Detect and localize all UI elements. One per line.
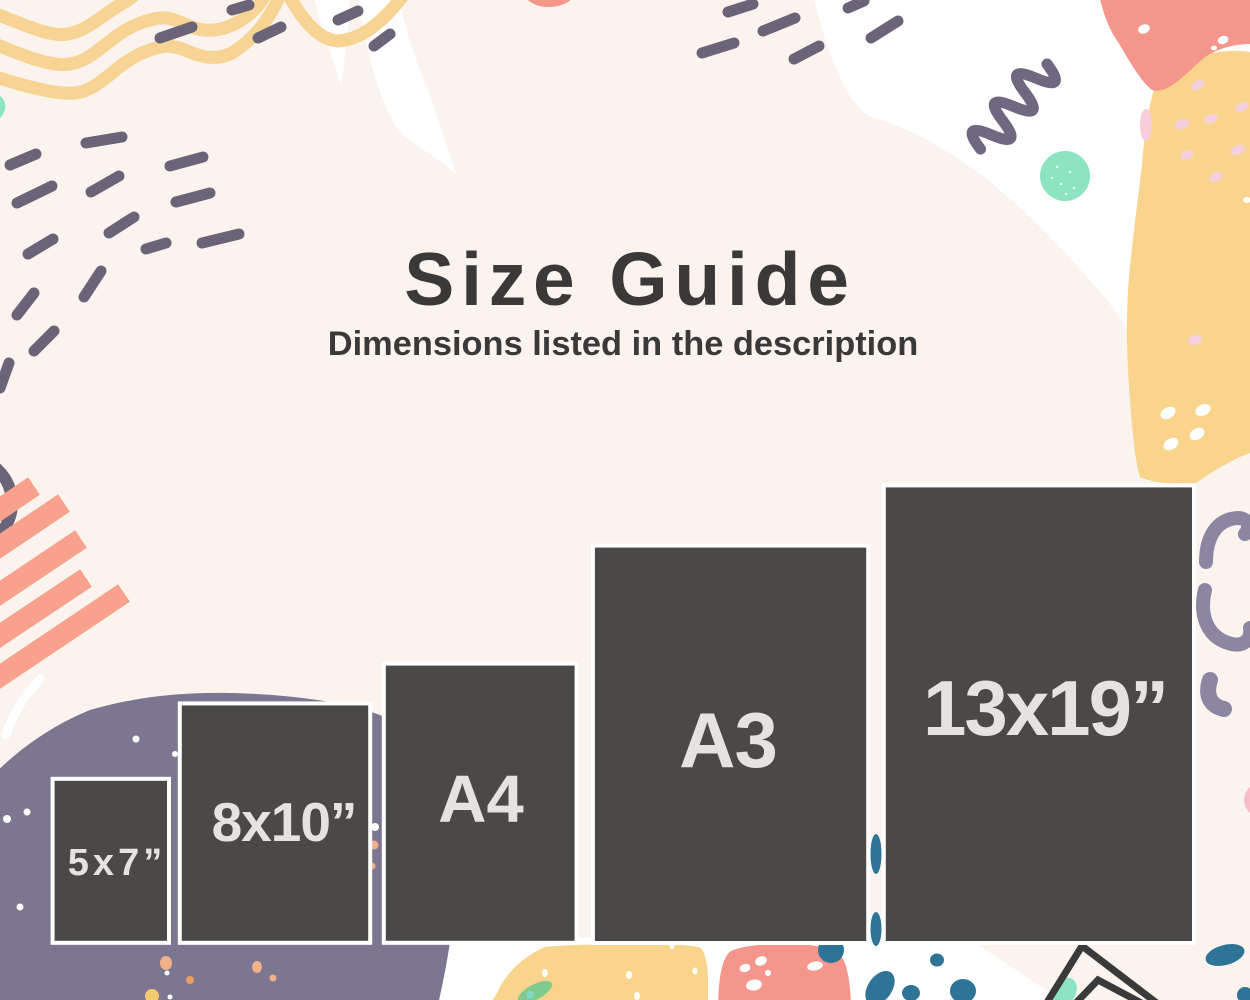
svg-text:A3: A3 <box>679 696 777 784</box>
svg-text:8x10”: 8x10” <box>212 791 357 853</box>
svg-text:5x7”: 5x7” <box>68 842 166 884</box>
svg-text:Dimensions listed in the descr: Dimensions listed in the description <box>328 325 918 363</box>
svg-text:A4: A4 <box>438 762 524 837</box>
svg-text:Size Guide: Size Guide <box>404 237 855 321</box>
svg-text:13x19”: 13x19” <box>923 664 1167 752</box>
